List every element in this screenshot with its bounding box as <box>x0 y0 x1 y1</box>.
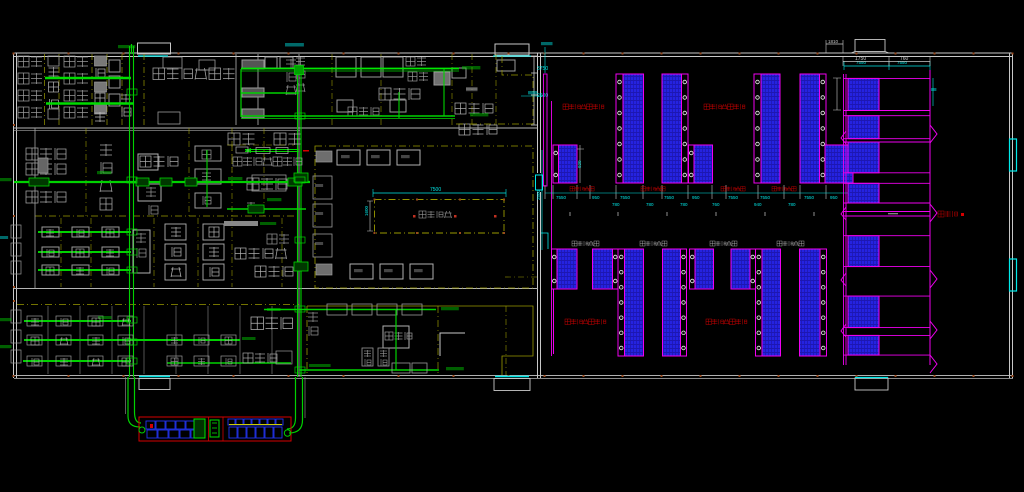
svg-text:760: 760 <box>712 202 720 207</box>
svg-text:940: 940 <box>754 202 762 207</box>
svg-text:3750: 3750 <box>537 66 548 72</box>
svg-text:1810: 1810 <box>828 39 839 44</box>
svg-text:7550: 7550 <box>804 195 815 200</box>
svg-text:950: 950 <box>830 195 838 200</box>
svg-text:950: 950 <box>692 195 700 200</box>
svg-text:7500: 7500 <box>430 187 441 193</box>
svg-text:1600: 1600 <box>364 205 369 216</box>
svg-text:2500: 2500 <box>536 189 541 200</box>
svg-text:780: 780 <box>788 202 796 207</box>
svg-text:780: 780 <box>612 202 620 207</box>
svg-text:7550: 7550 <box>664 195 675 200</box>
svg-text:780: 780 <box>646 202 654 207</box>
svg-text:7550: 7550 <box>620 195 631 200</box>
svg-text:950: 950 <box>592 195 600 200</box>
svg-text:920: 920 <box>577 160 582 168</box>
svg-text:7550: 7550 <box>556 195 567 200</box>
svg-text:7550: 7550 <box>728 195 739 200</box>
svg-text:1750: 1750 <box>855 56 866 62</box>
svg-text:760: 760 <box>900 56 909 62</box>
svg-text:780: 780 <box>680 202 688 207</box>
svg-text:7550: 7550 <box>760 195 771 200</box>
